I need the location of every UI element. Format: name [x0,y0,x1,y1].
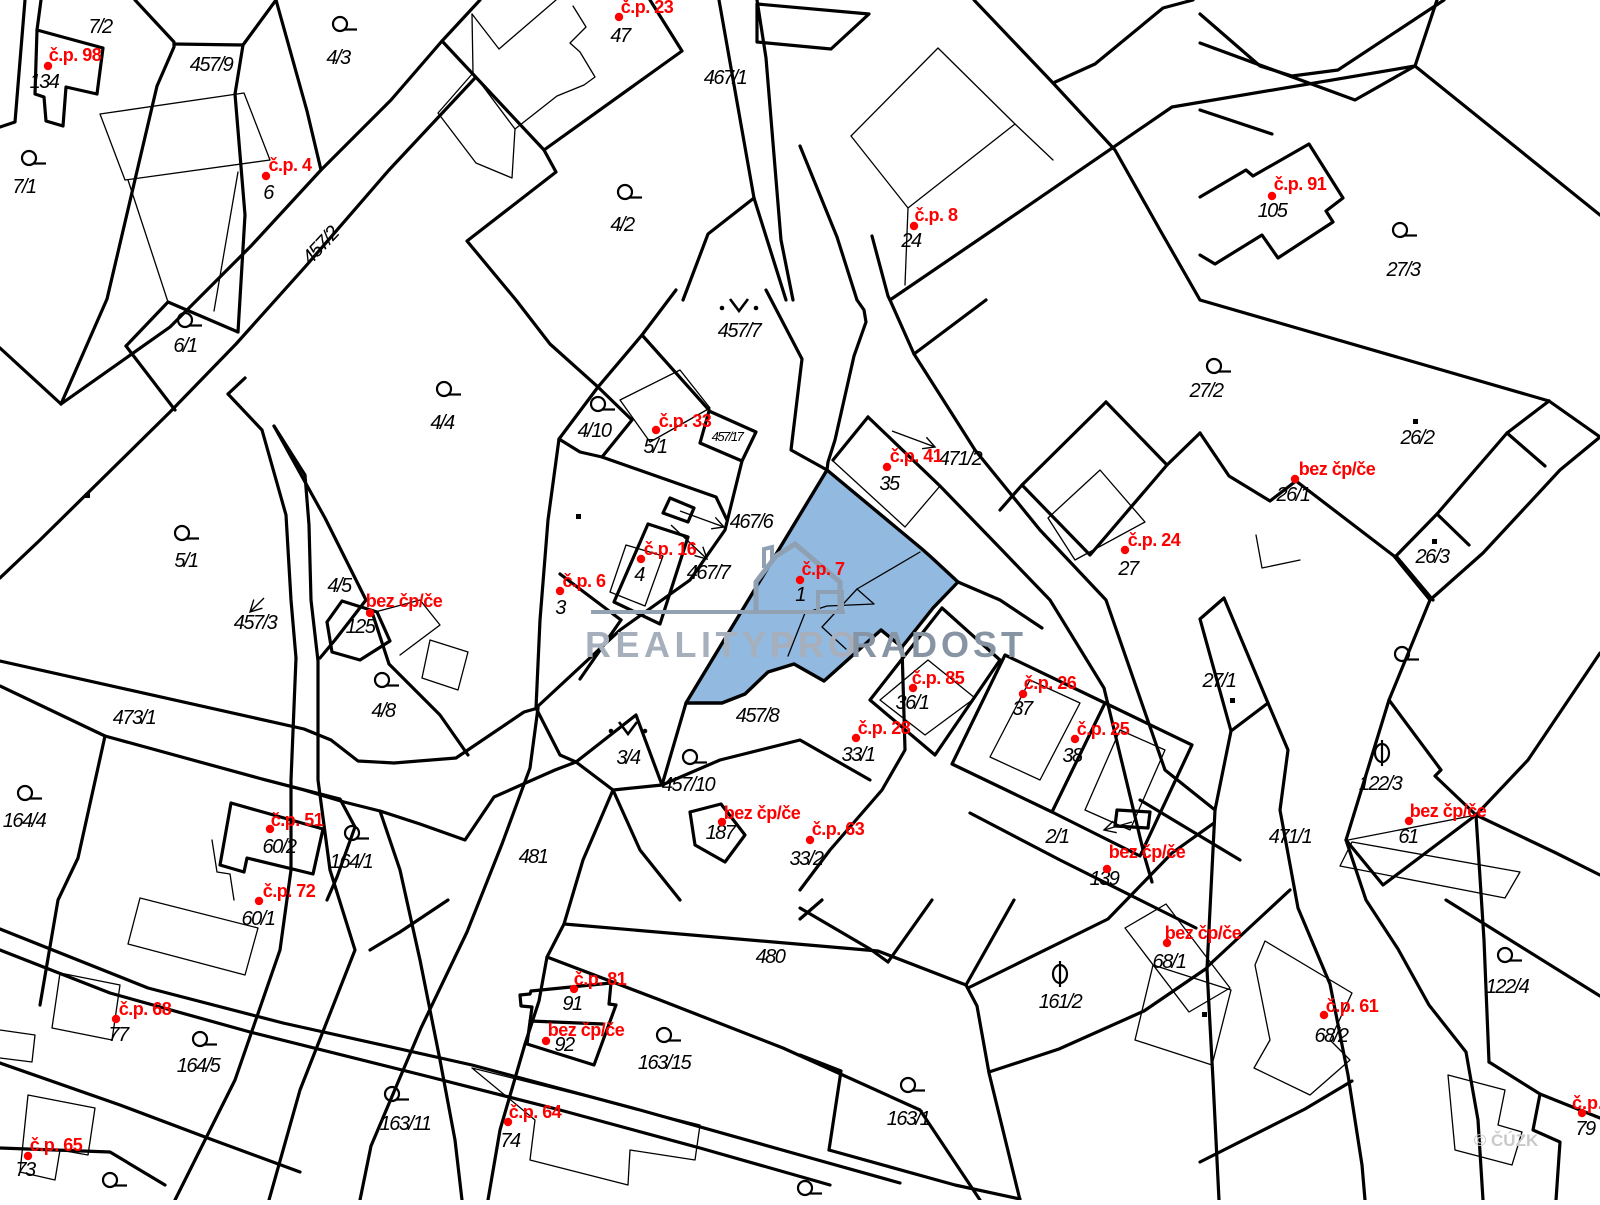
svg-text:27: 27 [1117,558,1140,580]
svg-text:4/4: 4/4 [430,412,455,434]
svg-text:471/1: 471/1 [1269,826,1312,848]
svg-text:č.p. 24: č.p. 24 [1128,530,1181,550]
svg-text:č.p. 25: č.p. 25 [1077,719,1130,739]
svg-text:457/17: 457/17 [712,429,745,444]
svg-text:č.p. 81: č.p. 81 [574,969,627,989]
svg-text:4/3: 4/3 [326,47,351,69]
svg-text:125: 125 [346,616,377,638]
svg-text:č.p. 6: č.p. 6 [1572,1093,1600,1113]
svg-text:č.p. 28: č.p. 28 [858,718,911,738]
svg-text:60/1: 60/1 [242,908,275,930]
svg-text:3: 3 [555,597,566,619]
svg-text:č.p. 33: č.p. 33 [659,411,712,431]
svg-text:467/6: 467/6 [730,511,775,533]
svg-text:2/1: 2/1 [1044,826,1069,848]
svg-text:bez čp/če: bez čp/če [1410,801,1487,821]
svg-text:91: 91 [562,993,582,1015]
svg-text:26/1: 26/1 [1276,484,1310,506]
svg-text:č.p. 51: č.p. 51 [271,810,324,830]
svg-text:bez čp/če: bez čp/če [1165,923,1242,943]
svg-text:4/10: 4/10 [578,420,612,442]
svg-text:7/1: 7/1 [12,176,36,198]
svg-text:35: 35 [879,473,901,495]
svg-text:457/10: 457/10 [662,774,716,796]
svg-text:27/3: 27/3 [1386,259,1421,281]
svg-text:161/2: 161/2 [1039,991,1083,1013]
svg-text:164/1: 164/1 [330,851,373,873]
svg-text:163/1: 163/1 [887,1108,930,1130]
svg-text:č.p. 4: č.p. 4 [268,155,312,175]
svg-text:bez čp/če: bez čp/če [548,1020,625,1040]
svg-text:473/1: 473/1 [113,707,156,729]
svg-text:457/3: 457/3 [234,612,278,634]
svg-text:457/9: 457/9 [190,54,234,76]
svg-text:61: 61 [1398,826,1418,848]
svg-text:5/1: 5/1 [643,436,667,458]
svg-text:68/2: 68/2 [1315,1025,1349,1047]
svg-text:467/7: 467/7 [687,562,732,584]
svg-text:481: 481 [519,846,548,868]
svg-text:27/2: 27/2 [1189,380,1224,402]
svg-text:134: 134 [30,71,60,93]
svg-text:PRO: PRO [770,624,860,665]
svg-text:79: 79 [1575,1118,1596,1140]
svg-text:74: 74 [500,1130,521,1152]
svg-text:33/1: 33/1 [842,744,875,766]
svg-text:68/1: 68/1 [1153,951,1186,973]
svg-text:457/8: 457/8 [736,705,780,727]
svg-text:164/5: 164/5 [177,1055,222,1077]
svg-text:467/1: 467/1 [704,67,747,89]
svg-text:33/2: 33/2 [790,848,824,870]
svg-text:105: 105 [1258,200,1289,222]
svg-text:REALITY: REALITY [585,624,771,665]
svg-text:7/2: 7/2 [88,16,113,38]
svg-text:bez čp/če: bez čp/če [724,803,801,823]
svg-text:6/1: 6/1 [173,335,197,357]
svg-text:č.p. 8: č.p. 8 [914,205,958,225]
svg-text:č.p. 98: č.p. 98 [49,45,102,65]
svg-text:163/15: 163/15 [638,1052,693,1074]
svg-text:č.p. 72: č.p. 72 [263,881,316,901]
svg-text:24: 24 [900,230,922,252]
svg-text:bez čp/če: bez čp/če [366,591,443,611]
svg-text:36/1: 36/1 [896,692,929,714]
svg-text:č.p. 85: č.p. 85 [912,668,965,688]
svg-text:č.p. 16: č.p. 16 [644,539,697,559]
svg-text:5/1: 5/1 [174,550,198,572]
svg-text:26/3: 26/3 [1415,546,1450,568]
svg-text:457/7: 457/7 [718,320,763,342]
svg-text:27/1: 27/1 [1202,670,1236,692]
svg-text:RADOST: RADOST [851,624,1027,665]
svg-text:č.p. 61: č.p. 61 [1326,996,1379,1016]
svg-text:č.p. 68: č.p. 68 [119,999,172,1019]
svg-text:1: 1 [795,584,805,606]
svg-text:480: 480 [756,946,786,968]
svg-text:47: 47 [610,25,632,47]
svg-text:4/2: 4/2 [610,214,635,236]
svg-text:73: 73 [15,1159,36,1181]
svg-text:77: 77 [108,1024,130,1046]
svg-text:4/5: 4/5 [327,575,353,597]
svg-text:č.p. 64: č.p. 64 [509,1102,562,1122]
svg-text:č.p. 65: č.p. 65 [30,1135,83,1155]
svg-text:č.p. 41: č.p. 41 [890,446,943,466]
svg-text:č.p. 7: č.p. 7 [801,559,845,579]
svg-text:163/11: 163/11 [380,1113,431,1135]
svg-text:122/4: 122/4 [1486,976,1530,998]
svg-text:37: 37 [1012,698,1034,720]
svg-text:4/8: 4/8 [371,700,396,722]
svg-text:471/2: 471/2 [939,448,983,470]
svg-text:4: 4 [634,564,645,586]
svg-text:č.p. 6: č.p. 6 [562,571,606,591]
svg-text:č.p. 23: č.p. 23 [621,0,674,17]
svg-text:bez čp/če: bez čp/če [1299,459,1376,479]
svg-text:č.p. 63: č.p. 63 [812,819,865,839]
svg-text:26/2: 26/2 [1400,427,1435,449]
svg-text:122/3: 122/3 [1359,773,1403,795]
svg-text:60/2: 60/2 [263,836,297,858]
svg-text:38: 38 [1062,745,1083,767]
svg-text:č.p. 91: č.p. 91 [1274,174,1327,194]
svg-text:č.p. 26: č.p. 26 [1024,673,1077,693]
svg-text:© ČÚZK: © ČÚZK [1474,1131,1539,1150]
svg-text:3/4: 3/4 [616,747,641,769]
svg-text:164/4: 164/4 [3,810,47,832]
svg-text:bez čp/če: bez čp/če [1109,842,1186,862]
